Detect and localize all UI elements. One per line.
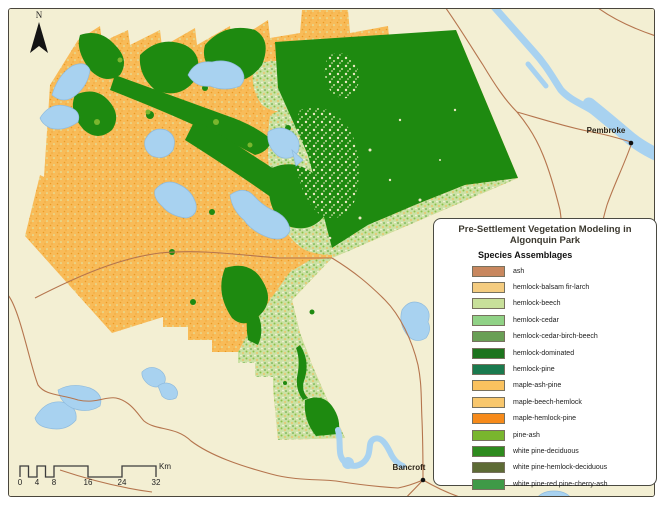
legend-subtitle: Species Assemblages [478, 250, 656, 260]
legend-swatch [472, 266, 505, 277]
legend-item-label: maple-hemlock-pine [505, 415, 576, 422]
legend-item-label: white pine-red pine-cherry-ash [505, 481, 608, 488]
bancroft-marker [420, 477, 425, 482]
map-document: N 0 4 8 16 24 32 Km Pembroke Bancroft Pr… [0, 0, 662, 508]
legend-swatch [472, 479, 505, 490]
legend-swatch [472, 348, 505, 359]
legend-item: pine-ash [434, 427, 656, 443]
legend-items: ashhemlock-balsam fir-larchhemlock-beech… [434, 263, 656, 492]
legend-swatch [472, 446, 505, 457]
legend-item: hemlock-beech [434, 296, 656, 312]
legend-item: white pine-red pine-cherry-ash [434, 476, 656, 492]
legend-item-label: hemlock-balsam fir-larch [505, 284, 589, 291]
city-label-pembroke: Pembroke [575, 126, 637, 135]
legend-item-label: hemlock-dominated [505, 350, 574, 357]
scale-unit: Km [159, 462, 171, 471]
legend-item: maple-ash-pine [434, 378, 656, 394]
legend-item-label: maple-ash-pine [505, 382, 561, 389]
legend-panel: Pre-Settlement Vegetation Modeling in Al… [433, 218, 657, 486]
legend-swatch [472, 430, 505, 441]
legend-item: maple-beech-hemlock [434, 394, 656, 410]
legend-item-label: ash [505, 268, 524, 275]
legend-item: ash [434, 263, 656, 279]
scale-tick: 4 [35, 478, 39, 487]
legend-item: hemlock-dominated [434, 345, 656, 361]
legend-item-label: maple-beech-hemlock [505, 399, 582, 406]
legend-item-label: white pine-deciduous [505, 448, 579, 455]
scale-tick: 24 [118, 478, 127, 487]
north-arrow-icon [26, 20, 52, 56]
legend-item: hemlock-balsam fir-larch [434, 279, 656, 295]
legend-item-label: hemlock-beech [505, 300, 560, 307]
legend-item: white pine-deciduous [434, 443, 656, 459]
legend-title: Pre-Settlement Vegetation Modeling in Al… [434, 224, 656, 246]
legend-item-label: white pine-hemlock-deciduous [505, 464, 607, 471]
legend-swatch [472, 462, 505, 473]
legend-swatch [472, 331, 505, 342]
scale-tick: 8 [52, 478, 56, 487]
scale-tick: 0 [18, 478, 22, 487]
legend-item-label: pine-ash [505, 432, 540, 439]
legend-swatch [472, 364, 505, 375]
pembroke-marker [628, 140, 633, 145]
scale-bar: 0 4 8 16 24 32 Km [14, 460, 192, 492]
legend-item: hemlock-pine [434, 361, 656, 377]
legend-item: maple-hemlock-pine [434, 411, 656, 427]
legend-swatch [472, 282, 505, 293]
legend-item-label: hemlock-pine [505, 366, 555, 373]
legend-swatch [472, 315, 505, 326]
legend-item: hemlock-cedar-birch-beech [434, 329, 656, 345]
legend-swatch [472, 298, 505, 309]
legend-swatch [472, 413, 505, 424]
legend-swatch [472, 397, 505, 408]
scale-tick: 32 [152, 478, 161, 487]
legend-item-label: hemlock-cedar [505, 317, 559, 324]
legend-swatch [472, 380, 505, 391]
legend-item: hemlock-cedar [434, 312, 656, 328]
legend-item: white pine-hemlock-deciduous [434, 460, 656, 476]
legend-item-label: hemlock-cedar-birch-beech [505, 333, 598, 340]
north-arrow: N [26, 10, 52, 61]
city-label-bancroft: Bancroft [380, 463, 438, 472]
north-label: N [26, 10, 52, 20]
scale-tick: 16 [84, 478, 93, 487]
